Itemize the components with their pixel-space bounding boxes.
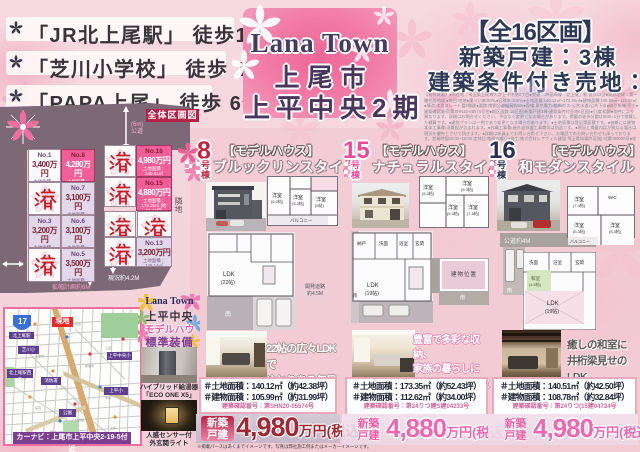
svg-text:(19帖): (19帖) [365,290,379,297]
svg-text:(19帖): (19帖) [545,308,559,315]
svg-text:バルコニー: バルコニー [570,239,590,244]
svg-text:南: 南 [353,292,358,298]
svg-text:(5.3帖): (5.3帖) [461,186,474,192]
svg-text:洋室: 洋室 [293,194,303,201]
svg-text:LDK: LDK [547,301,559,307]
svg-text:和室: 和室 [531,275,540,282]
svg-text:WIC: WIC [608,195,617,200]
svg-text:洋室: 洋室 [462,180,472,187]
svg-text:(5.3帖): (5.3帖) [422,190,435,196]
svg-text:(5.3帖): (5.3帖) [292,200,305,206]
svg-text:浴室: 浴室 [553,259,562,266]
svg-text:洋室: 洋室 [574,196,584,203]
svg-text:(5.3帖): (5.3帖) [609,228,622,234]
svg-text:玄関: 玄関 [575,259,584,266]
svg-text:洋室: 洋室 [423,184,433,191]
svg-text:(22帖): (22帖) [221,279,235,286]
svg-text:(7.4帖): (7.4帖) [573,202,586,208]
svg-text:洋室: 洋室 [574,222,584,229]
svg-text:(5.3帖): (5.3帖) [573,228,586,234]
svg-text:現況約4.2M: 現況約4.2M [108,274,139,282]
svg-text:(4.5帖): (4.5帖) [529,281,542,287]
svg-text:バルコニー: バルコニー [290,218,313,223]
svg-text:(5.3帖): (5.3帖) [447,210,460,216]
svg-text:洗面: 洗面 [379,240,388,247]
svg-text:LDK: LDK [367,283,379,289]
svg-text:洗面: 洗面 [529,259,538,266]
svg-text:洋室: 洋室 [610,222,620,229]
svg-text:洋室: 洋室 [272,192,282,199]
svg-text:浴室: 浴室 [399,240,408,247]
svg-text:洋室: 洋室 [468,204,478,211]
svg-text:拡幅計画約6M: 拡幅計画約6M [52,283,90,291]
svg-text:(6m): (6m) [131,122,143,128]
svg-text:公道: 公道 [131,127,143,135]
svg-text:南: 南 [225,310,231,318]
svg-text:洋室: 洋室 [316,196,326,203]
svg-text:LDK: LDK [223,272,235,278]
svg-text:洋室: 洋室 [448,204,458,211]
svg-text:玄関: 玄関 [415,240,424,247]
svg-text:(7.5帖): (7.5帖) [467,210,480,216]
svg-text:納戸: 納戸 [357,240,366,247]
svg-text:(6帖): (6帖) [315,202,325,208]
svg-text:(6.0帖): (6.0帖) [271,198,284,204]
